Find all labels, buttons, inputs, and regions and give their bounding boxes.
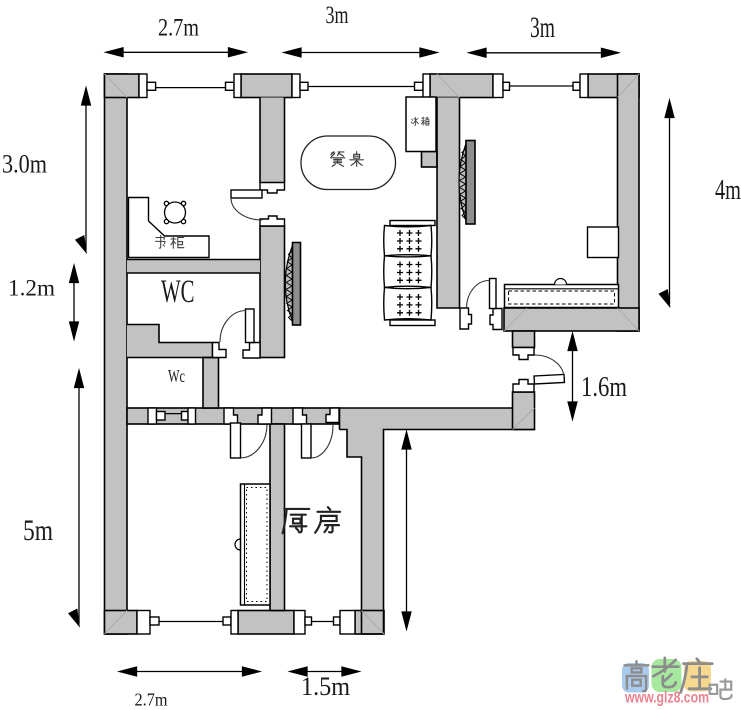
svg-text:5m: 5m bbox=[23, 514, 53, 547]
svg-text:2.7m: 2.7m bbox=[135, 690, 168, 710]
svg-text:3m: 3m bbox=[530, 11, 555, 44]
svg-text:1.6m: 1.6m bbox=[581, 371, 627, 403]
svg-text:Wc: Wc bbox=[168, 366, 185, 386]
svg-text:4m: 4m bbox=[715, 175, 741, 206]
svg-text:1.5m: 1.5m bbox=[301, 672, 350, 701]
svg-text:3m: 3m bbox=[326, 2, 349, 29]
svg-text:1.2m: 1.2m bbox=[8, 276, 55, 301]
svg-text:www.glz8.com: www.glz8.com bbox=[624, 690, 709, 707]
svg-text:WC: WC bbox=[161, 274, 195, 310]
svg-text:3.0m: 3.0m bbox=[2, 150, 47, 179]
svg-text:2.7m: 2.7m bbox=[158, 15, 199, 42]
